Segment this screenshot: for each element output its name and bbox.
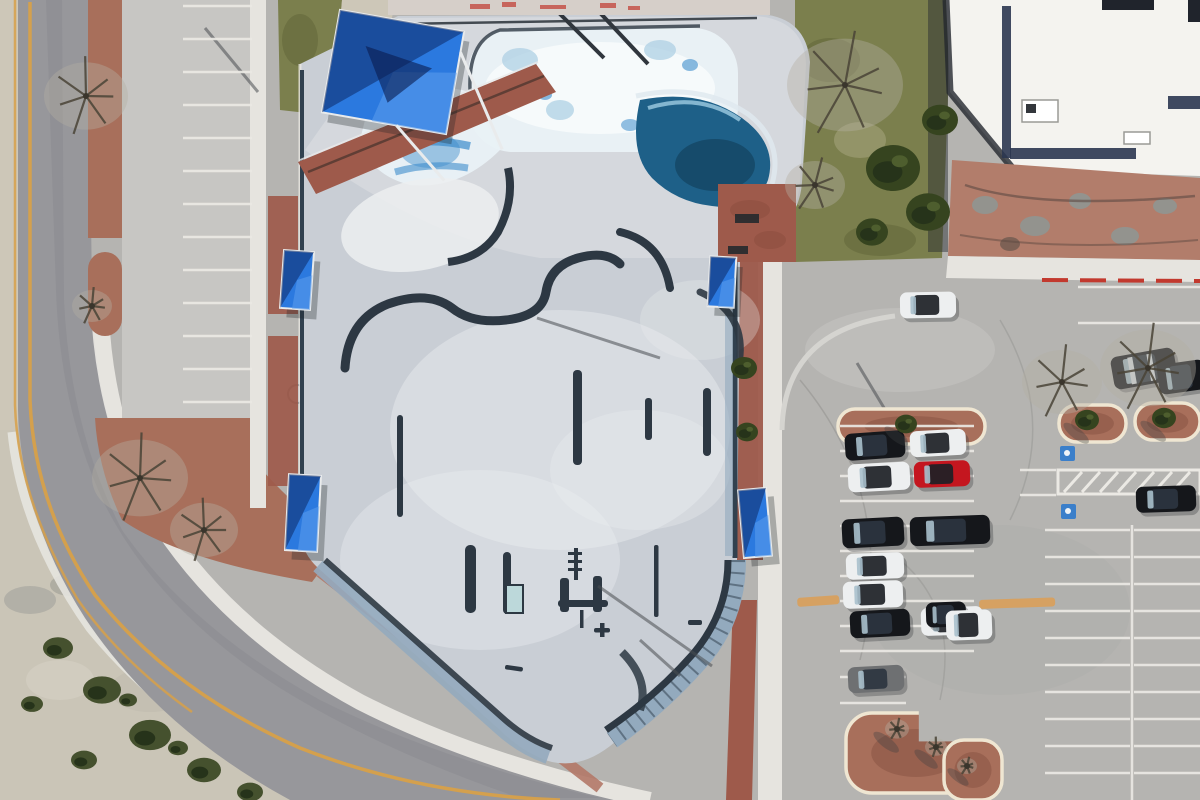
car-cabin — [861, 668, 888, 689]
trunk — [83, 93, 89, 99]
roof-parapet-trim — [1168, 96, 1200, 109]
tree — [856, 218, 888, 245]
trunk — [201, 527, 207, 533]
trunk — [1145, 365, 1151, 371]
car-cabin — [913, 295, 939, 315]
accessible-stall-symbol — [1060, 446, 1075, 461]
car-windshield — [1147, 490, 1154, 508]
trunk — [894, 726, 900, 732]
car-cabin — [864, 612, 893, 634]
car-windshield — [926, 521, 935, 542]
branch — [86, 96, 113, 97]
trunk — [812, 182, 818, 188]
tree — [866, 145, 920, 191]
tree — [906, 193, 950, 230]
car-cabin — [856, 520, 886, 544]
accessible-stall-symbol — [1061, 504, 1076, 519]
car-cabin — [862, 465, 892, 488]
box-obstacle — [506, 585, 523, 613]
tree — [736, 423, 758, 442]
car-windshield — [853, 523, 860, 544]
sidewalk-strip — [946, 256, 1200, 282]
red-curb — [1042, 280, 1200, 281]
car-windshield — [854, 585, 861, 604]
branch — [85, 56, 86, 96]
scrub-bush — [83, 676, 121, 703]
boulder — [1000, 237, 1020, 251]
car-cabin — [1150, 489, 1178, 510]
scrub-bush — [21, 696, 43, 712]
car-cabin — [859, 434, 888, 457]
car-windshield — [910, 296, 916, 314]
tree — [922, 105, 958, 136]
parked-car — [843, 580, 907, 613]
trunk — [137, 475, 143, 481]
rock-patch — [4, 586, 56, 614]
roof-unit — [1124, 132, 1150, 144]
parked-car — [846, 552, 908, 584]
branch — [203, 498, 204, 530]
car-windshield — [924, 465, 930, 483]
roof-parapet-trim — [1002, 6, 1011, 158]
pool-paint-mottle — [682, 59, 698, 71]
branch — [140, 432, 142, 478]
car-windshield — [861, 615, 868, 634]
parked-car — [914, 460, 974, 492]
trunk — [89, 303, 95, 309]
sand-patch — [26, 660, 94, 700]
aerial-photo — [0, 0, 1200, 800]
car-windshield — [857, 557, 863, 575]
car-cabin — [860, 556, 887, 577]
trunk — [933, 744, 939, 750]
car-windshield — [932, 606, 937, 623]
car-windshield — [859, 468, 866, 488]
trunk — [964, 763, 970, 769]
parked-car — [847, 461, 914, 496]
roof-unit — [1022, 100, 1058, 122]
scrub-bush — [43, 637, 73, 659]
pool-paint-mottle — [644, 40, 676, 60]
scrub-bush — [119, 694, 137, 707]
boulder — [1020, 216, 1050, 236]
trunk — [842, 82, 848, 88]
tree — [731, 357, 757, 379]
pool-paint-mottle — [546, 100, 574, 120]
roof-parapet-trim — [1010, 148, 1136, 159]
brick-path-west — [268, 336, 298, 486]
roof-equipment — [1188, 0, 1200, 22]
car-windshield — [920, 435, 927, 453]
car-cabin — [923, 432, 950, 453]
car-cabin — [857, 584, 885, 606]
kidney-bowl-deep-end — [675, 139, 755, 191]
bench — [735, 214, 759, 223]
satellite-image: Aerial satellite photo — concrete skatep… — [0, 0, 1200, 800]
boulder — [1111, 227, 1139, 245]
shade-canopy — [285, 474, 328, 561]
car-windshield — [954, 614, 959, 636]
parked-car — [910, 515, 994, 551]
sidewalk-vertical — [250, 0, 266, 508]
car-cabin — [927, 464, 953, 485]
roof-equipment — [1102, 0, 1154, 10]
scrub-bush — [71, 751, 97, 770]
parked-car — [909, 428, 969, 461]
boulder — [972, 196, 998, 214]
parked-car — [945, 609, 995, 645]
parked-car — [841, 516, 908, 552]
pavement-patch — [805, 308, 995, 392]
trunk — [1059, 379, 1065, 385]
scrub-bush — [129, 720, 171, 750]
upper-pavement-strip — [388, 0, 770, 15]
parked-car — [1136, 485, 1200, 517]
scrub-bush — [187, 758, 221, 782]
bench — [728, 246, 748, 254]
moving-car — [900, 291, 960, 322]
car-cabin — [957, 613, 979, 638]
parked-car — [847, 664, 907, 697]
car-windshield — [858, 671, 865, 689]
boulder — [1153, 198, 1177, 214]
brick-patio — [718, 184, 796, 262]
scrub-bush — [168, 741, 188, 755]
shade-canopy — [738, 487, 780, 567]
parked-car — [849, 608, 914, 642]
